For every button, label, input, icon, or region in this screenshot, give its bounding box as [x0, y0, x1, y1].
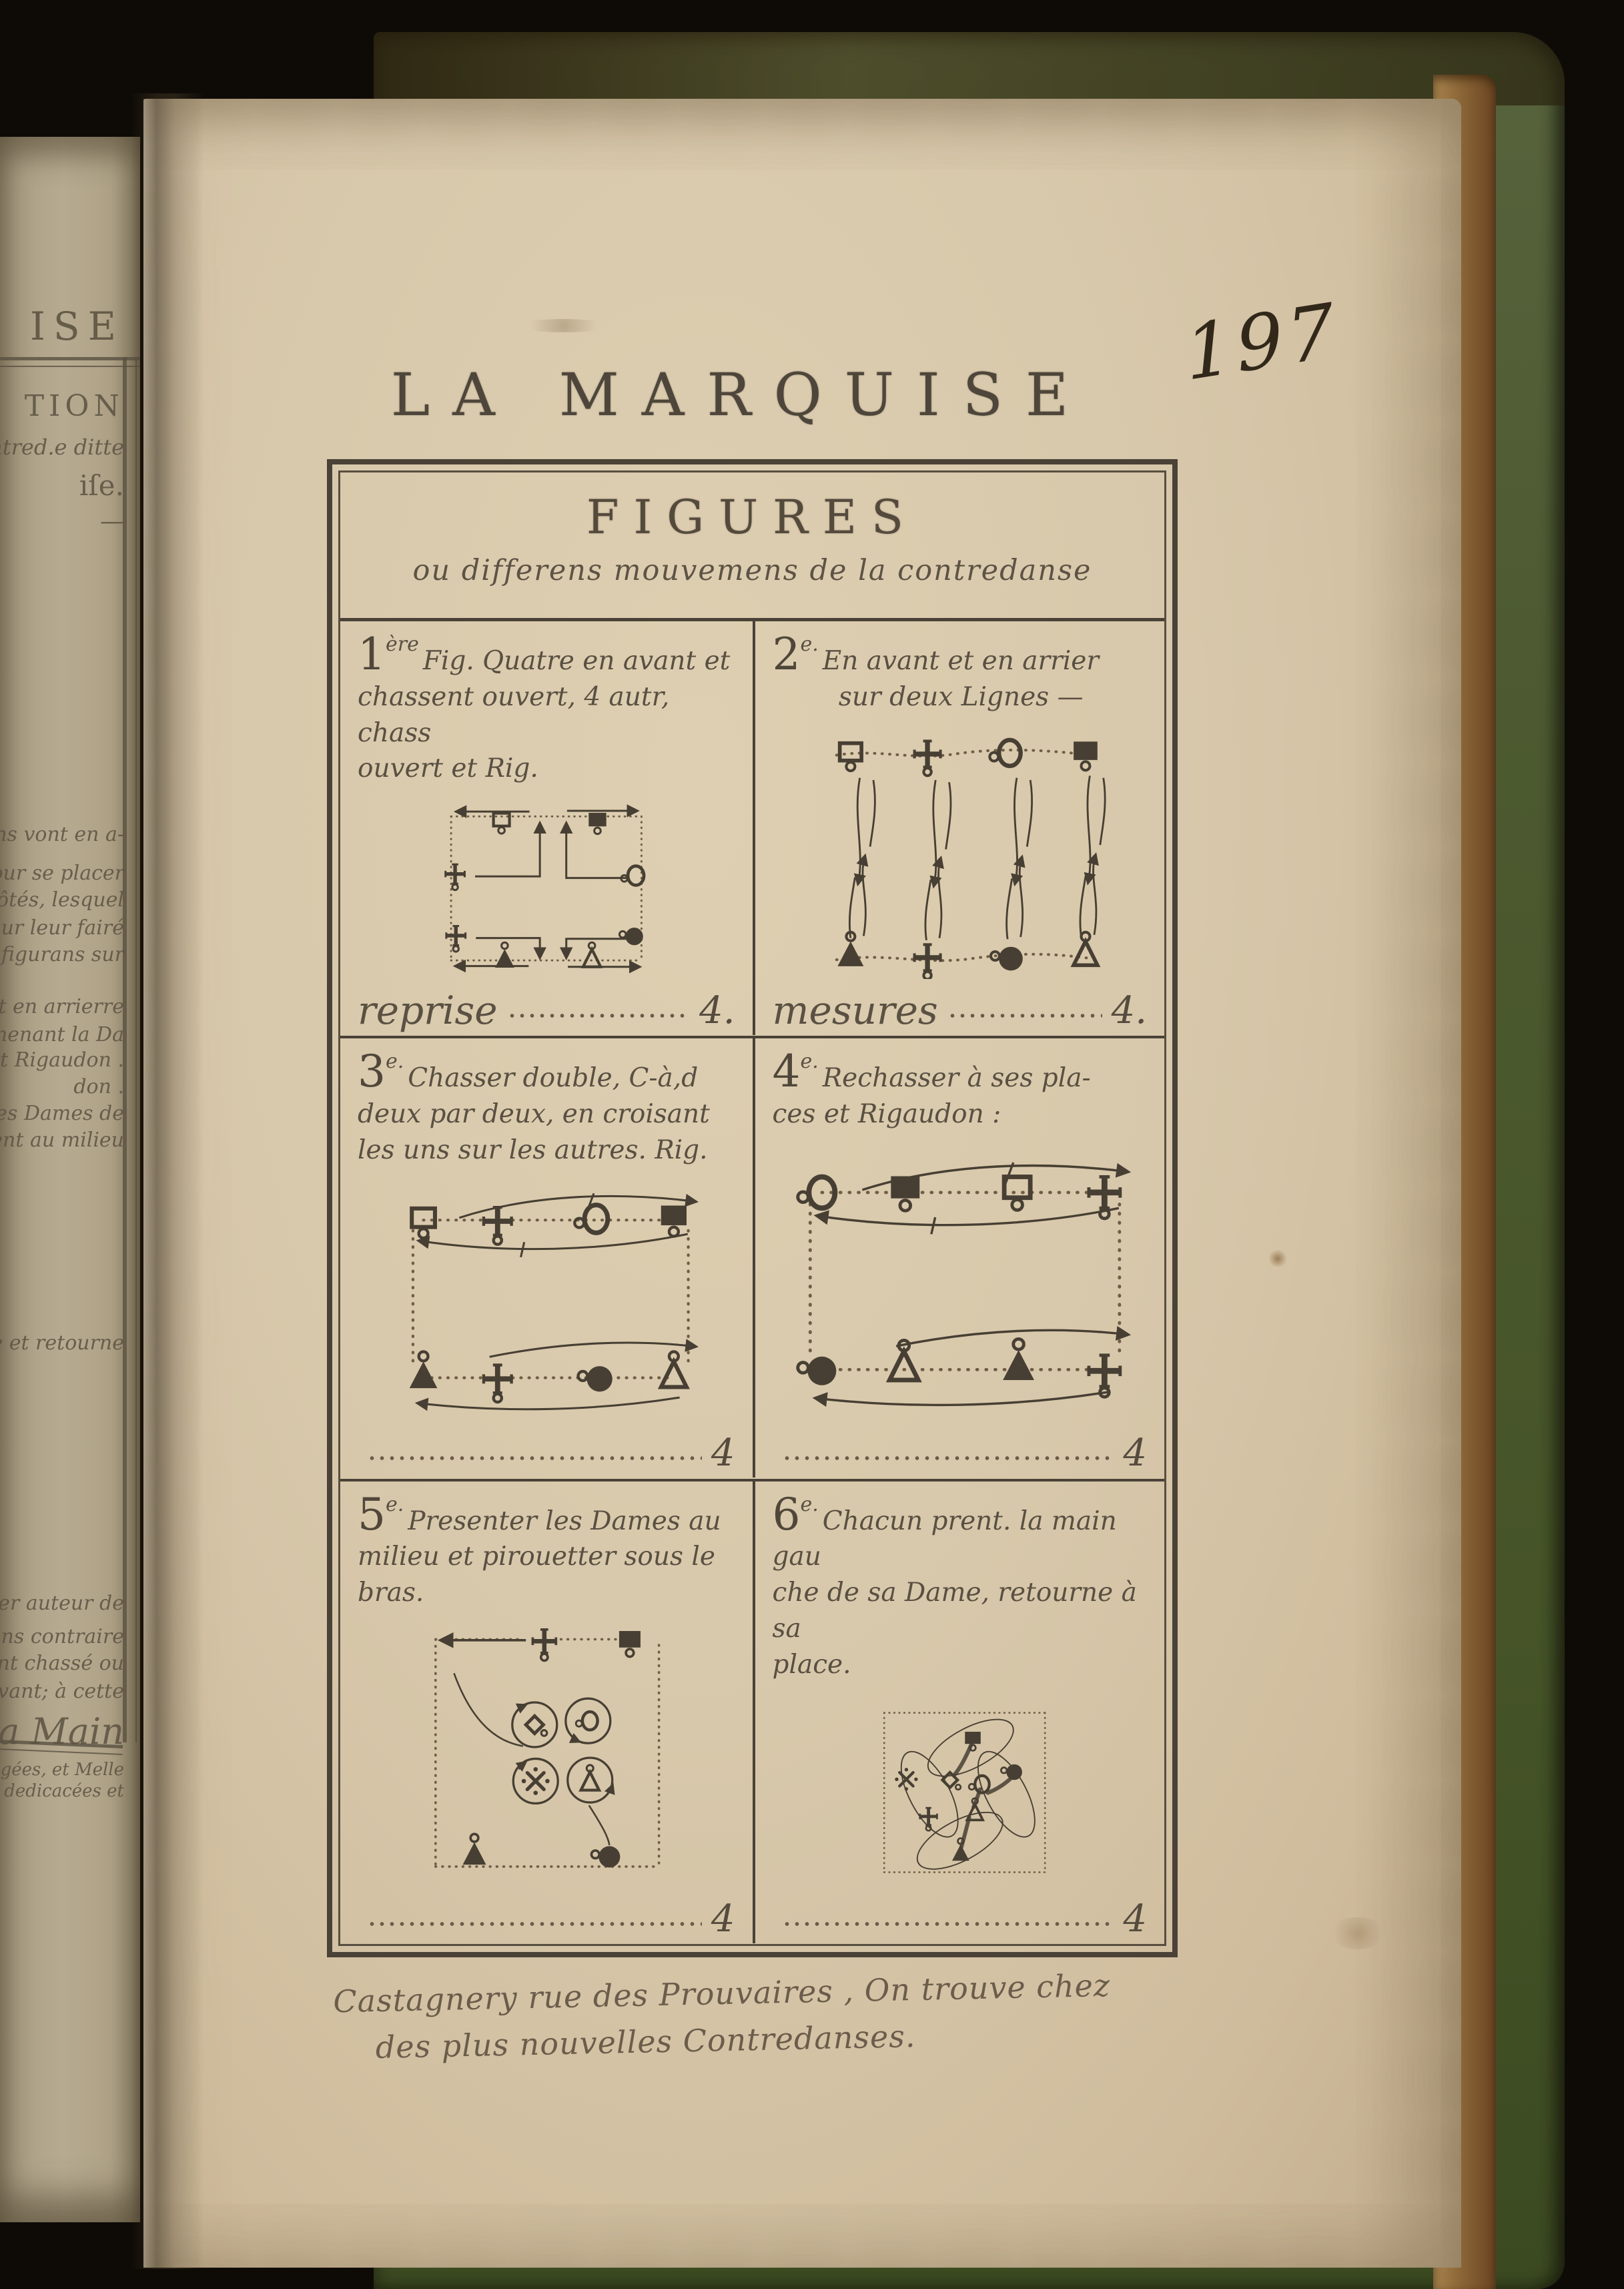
panel-ordinal-suffix: e.: [801, 1050, 819, 1073]
dancer-diamond-icon: [942, 1772, 960, 1790]
prev-page-fragment: les Dames de: [0, 1102, 124, 1125]
dancer-filled-triangle-icon: [951, 1838, 969, 1861]
caption-line: place.: [773, 1647, 1150, 1683]
dancer-filled-triangle-icon: [1003, 1339, 1034, 1379]
figures-header: FIGURES: [340, 472, 1164, 545]
imprint-line: des plus nouvelles Contredanses.: [375, 2014, 1112, 2065]
figure-2-diagram: [765, 719, 1156, 979]
dancer-cross-icon: [1088, 1355, 1120, 1397]
previous-page-edge: ISE TION ontred.e ditte iſe. — ns vont e…: [0, 137, 140, 2222]
measure-label: mesures: [773, 991, 938, 1030]
figure-panel-1: 1èreFig. Quatre en avant et chassent ouv…: [340, 621, 753, 1035]
panel-ordinal: 3: [358, 1046, 386, 1097]
caption-line: Chasser double, C-à,d: [408, 1063, 698, 1093]
prev-page-fragment: lent au milieu: [0, 1128, 124, 1152]
dancer-open-square-icon: [1004, 1177, 1030, 1210]
dancer-open-square-icon: [839, 743, 861, 770]
panel-diagram: [350, 1173, 743, 1422]
panel-caption: 3e.Chasser double, C-à,d deux par deux, …: [358, 1048, 738, 1168]
panel-footer: mesures 4.: [773, 979, 1148, 1030]
prev-page-fragment: don .: [73, 1075, 124, 1098]
panel-diagram: [765, 1687, 1156, 1887]
dotted-leader: [367, 1455, 702, 1461]
figure-panel-5: 5e.Presenter les Dames au milieu et piro…: [340, 1479, 753, 1943]
book-cover-worn-edge: [374, 32, 1565, 105]
dancer-open-circle-icon: [797, 1177, 835, 1208]
dancer-filled-square-icon: [1074, 741, 1098, 770]
paper-stain: [1328, 1917, 1388, 1949]
panel-ordinal-suffix: ère: [386, 633, 419, 656]
dancer-filled-triangle-icon: [495, 942, 514, 968]
measure-count: 4: [1123, 1901, 1147, 1938]
prev-page-fragment: ontred.e ditte: [0, 434, 124, 460]
caption-line: ces et Rigaudon :: [773, 1096, 1150, 1132]
panel-ordinal-suffix: e.: [386, 1050, 404, 1073]
dancer-open-circle-icon: [621, 866, 644, 886]
panel-caption: 2e.En avant et en arrier sur deux Lignes…: [773, 631, 1150, 715]
dotted-leader: [782, 1455, 1114, 1461]
dancer-filled-square-icon: [965, 1732, 981, 1750]
panel-diagram: [350, 791, 743, 979]
paper-stain: [1268, 1250, 1288, 1267]
panel-footer: 4: [773, 1421, 1148, 1472]
measure-count: 4: [1123, 1435, 1147, 1472]
panel-caption: 1èreFig. Quatre en avant et chassent ouv…: [358, 631, 738, 787]
dancer-x-cross-icon: [895, 1768, 917, 1790]
panel-footer: reprise 4.: [358, 979, 735, 1030]
dancer-filled-circle-icon: [797, 1357, 836, 1385]
dancer-filled-circle-icon: [1001, 1764, 1022, 1780]
measure-count: 4: [711, 1901, 735, 1938]
dancer-filled-triangle-icon: [463, 1834, 486, 1865]
caption-line: Fig. Quatre en avant et: [423, 646, 731, 676]
dancer-cross-icon: [532, 1630, 556, 1661]
measure-label: reprise: [358, 991, 498, 1030]
caption-line: chassent ouvert, 4 autr, chass: [358, 679, 738, 751]
dancer-open-triangle-icon: [889, 1340, 918, 1380]
caption-line: Chacun prent. la main gau: [773, 1506, 1117, 1572]
panel-footer: 4: [358, 1887, 735, 1938]
dancer-filled-circle-icon: [591, 1847, 620, 1868]
dancer-filled-circle-icon: [990, 946, 1022, 970]
dancer-open-triangle-icon: [1074, 932, 1098, 964]
caption-line: En avant et en arrier: [823, 646, 1099, 676]
panel-diagram: [765, 719, 1156, 979]
figure-6-diagram: [765, 1687, 1156, 1887]
prev-page-fragment: —: [100, 508, 124, 535]
dancer-filled-circle-icon: [619, 928, 643, 945]
dancer-cross-icon: [484, 1207, 512, 1245]
dancer-filled-square-icon: [588, 813, 606, 834]
prev-page-fragment: iſe.: [79, 469, 124, 502]
dancer-open-triangle-icon: [583, 942, 600, 967]
prev-page-fragment: t et en arrierre: [0, 995, 124, 1018]
prev-page-fragment: ire côtés, lesquel: [0, 888, 124, 912]
dancer-cross-icon: [446, 865, 465, 890]
dancer-cross-icon: [914, 944, 940, 979]
dancer-filled-square-icon: [619, 1631, 641, 1657]
caption-line: bras.: [358, 1575, 738, 1611]
figure-4-diagram: [765, 1136, 1156, 1421]
imprint-line: Castagnery rue des Prouvaires , On trouv…: [333, 1967, 1111, 2019]
dancer-filled-triangle-icon: [410, 1351, 438, 1388]
measure-count: 4.: [699, 992, 735, 1030]
prev-page-fragment: et Rigaudon .: [0, 1048, 124, 1072]
caption-line: Presenter les Dames au: [408, 1506, 721, 1536]
prev-page-fragment: ISE: [30, 304, 124, 349]
prev-page-fragment: s dedicacées et: [0, 1781, 124, 1801]
panel-ordinal-suffix: e.: [801, 1493, 819, 1516]
dancer-filled-circle-icon: [578, 1366, 613, 1391]
prev-page-fragment: avant; à cette: [0, 1680, 124, 1703]
panel-caption: 5e.Presenter les Dames au milieu et piro…: [358, 1491, 738, 1611]
caption-line: deux par deux, en croisant: [358, 1096, 738, 1132]
figure-3-diagram: [350, 1173, 743, 1422]
panel-footer: 4: [358, 1421, 735, 1472]
figures-grid: 1èreFig. Quatre en avant et chassent ouv…: [340, 618, 1164, 1944]
dancer-open-circle-icon: [989, 739, 1020, 765]
dotted-leader: [367, 1921, 702, 1927]
prev-page-fragment: ns contraire: [1, 1625, 124, 1648]
dotted-leader: [782, 1921, 1114, 1927]
prev-page-fragment: La Main: [0, 1710, 124, 1752]
prev-page-fragment: ns vont en a-: [0, 823, 124, 846]
prev-page-fragment: nt chassé ou: [0, 1652, 124, 1675]
panel-ordinal-suffix: e.: [386, 1493, 404, 1516]
dancer-open-triangle-icon: [661, 1351, 687, 1387]
dancer-x-cross-icon: [522, 1767, 550, 1795]
dancer-open-triangle-icon: [581, 1765, 599, 1790]
dancer-diamond-icon: [526, 1716, 547, 1736]
dancer-open-circle-icon: [576, 1712, 597, 1730]
prev-page-fragment: agées, et Melle: [0, 1760, 124, 1780]
caption-line: les uns sur les autres. Rig.: [358, 1132, 738, 1169]
dancer-cross-icon: [446, 926, 466, 952]
panel-ordinal: 2: [773, 629, 801, 680]
figures-box-inner-border: FIGURES ou differens mouvemens de la con…: [338, 470, 1166, 1946]
figures-subtitle: ou differens mouvemens de la contredanse: [340, 554, 1164, 587]
figure-panel-6: 6e.Chacun prent. la main gau che de sa D…: [753, 1479, 1165, 1943]
prev-page-fragment: ner auteur de: [0, 1592, 124, 1615]
panel-diagram: [765, 1136, 1156, 1421]
imprint: Castagnery rue des Prouvaires , On trouv…: [333, 1967, 1112, 2066]
dancer-open-square-icon: [412, 1209, 435, 1238]
caption-line: ouvert et Rig.: [358, 751, 738, 787]
panel-ordinal: 4: [773, 1046, 801, 1097]
page-title: LA MARQUISE: [82, 360, 1400, 429]
dancer-filled-square-icon: [891, 1176, 919, 1211]
dancer-filled-square-icon: [661, 1205, 687, 1236]
caption-line: che de sa Dame, retourne à sa: [773, 1575, 1150, 1647]
book-gutter-shadow: [131, 93, 204, 2269]
caption-line: milieu et pirouetter sous le: [358, 1539, 738, 1575]
caption-line: Rechasser à ses pla-: [823, 1063, 1091, 1093]
measure-count: 4.: [1112, 992, 1147, 1030]
prev-page-fragment: ur leur fairé: [1, 916, 124, 940]
figure-1-diagram: [350, 791, 743, 979]
panel-caption: 4e.Rechasser à ses pla- ces et Rigaudon …: [773, 1048, 1150, 1132]
prev-page-fragment: e figurans sur: [0, 943, 124, 966]
panel-ordinal: 6: [773, 1489, 801, 1540]
book-photograph: ISE TION ontred.e ditte iſe. — ns vont e…: [0, 0, 1624, 2289]
dancer-cross-icon: [484, 1365, 512, 1402]
page: 197 LA MARQUISE FIGURES ou differens mou…: [143, 99, 1461, 2268]
caption-line: sur deux Lignes —: [773, 679, 1150, 715]
panel-ordinal: 5: [358, 1489, 386, 1540]
panel-ordinal-suffix: e.: [801, 633, 819, 656]
dotted-leader: [947, 1012, 1102, 1019]
panel-ordinal: 1: [358, 629, 386, 680]
paper-stain: [517, 319, 611, 332]
dotted-leader: [507, 1012, 691, 1019]
prev-page-fragment: menant la Da: [0, 1023, 124, 1046]
measure-count: 4: [711, 1435, 735, 1472]
figure-panel-2: 2e.En avant et en arrier sur deux Lignes…: [753, 621, 1165, 1035]
panel-diagram: [350, 1615, 743, 1887]
prev-page-fragment: ame et retourne: [0, 1331, 124, 1355]
figure-panel-4: 4e.Rechasser à ses pla- ces et Rigaudon …: [753, 1036, 1165, 1478]
prev-page-fragment: t pour se placer: [0, 862, 124, 885]
panel-caption: 6e.Chacun prent. la main gau che de sa D…: [773, 1491, 1150, 1683]
figure-panel-3: 3e.Chasser double, C-à,d deux par deux, …: [340, 1036, 753, 1478]
figure-5-diagram: [350, 1615, 743, 1887]
panel-footer: 4: [773, 1887, 1148, 1938]
dancer-cross-icon: [914, 741, 940, 775]
figures-box: FIGURES ou differens mouvemens de la con…: [327, 459, 1178, 1957]
